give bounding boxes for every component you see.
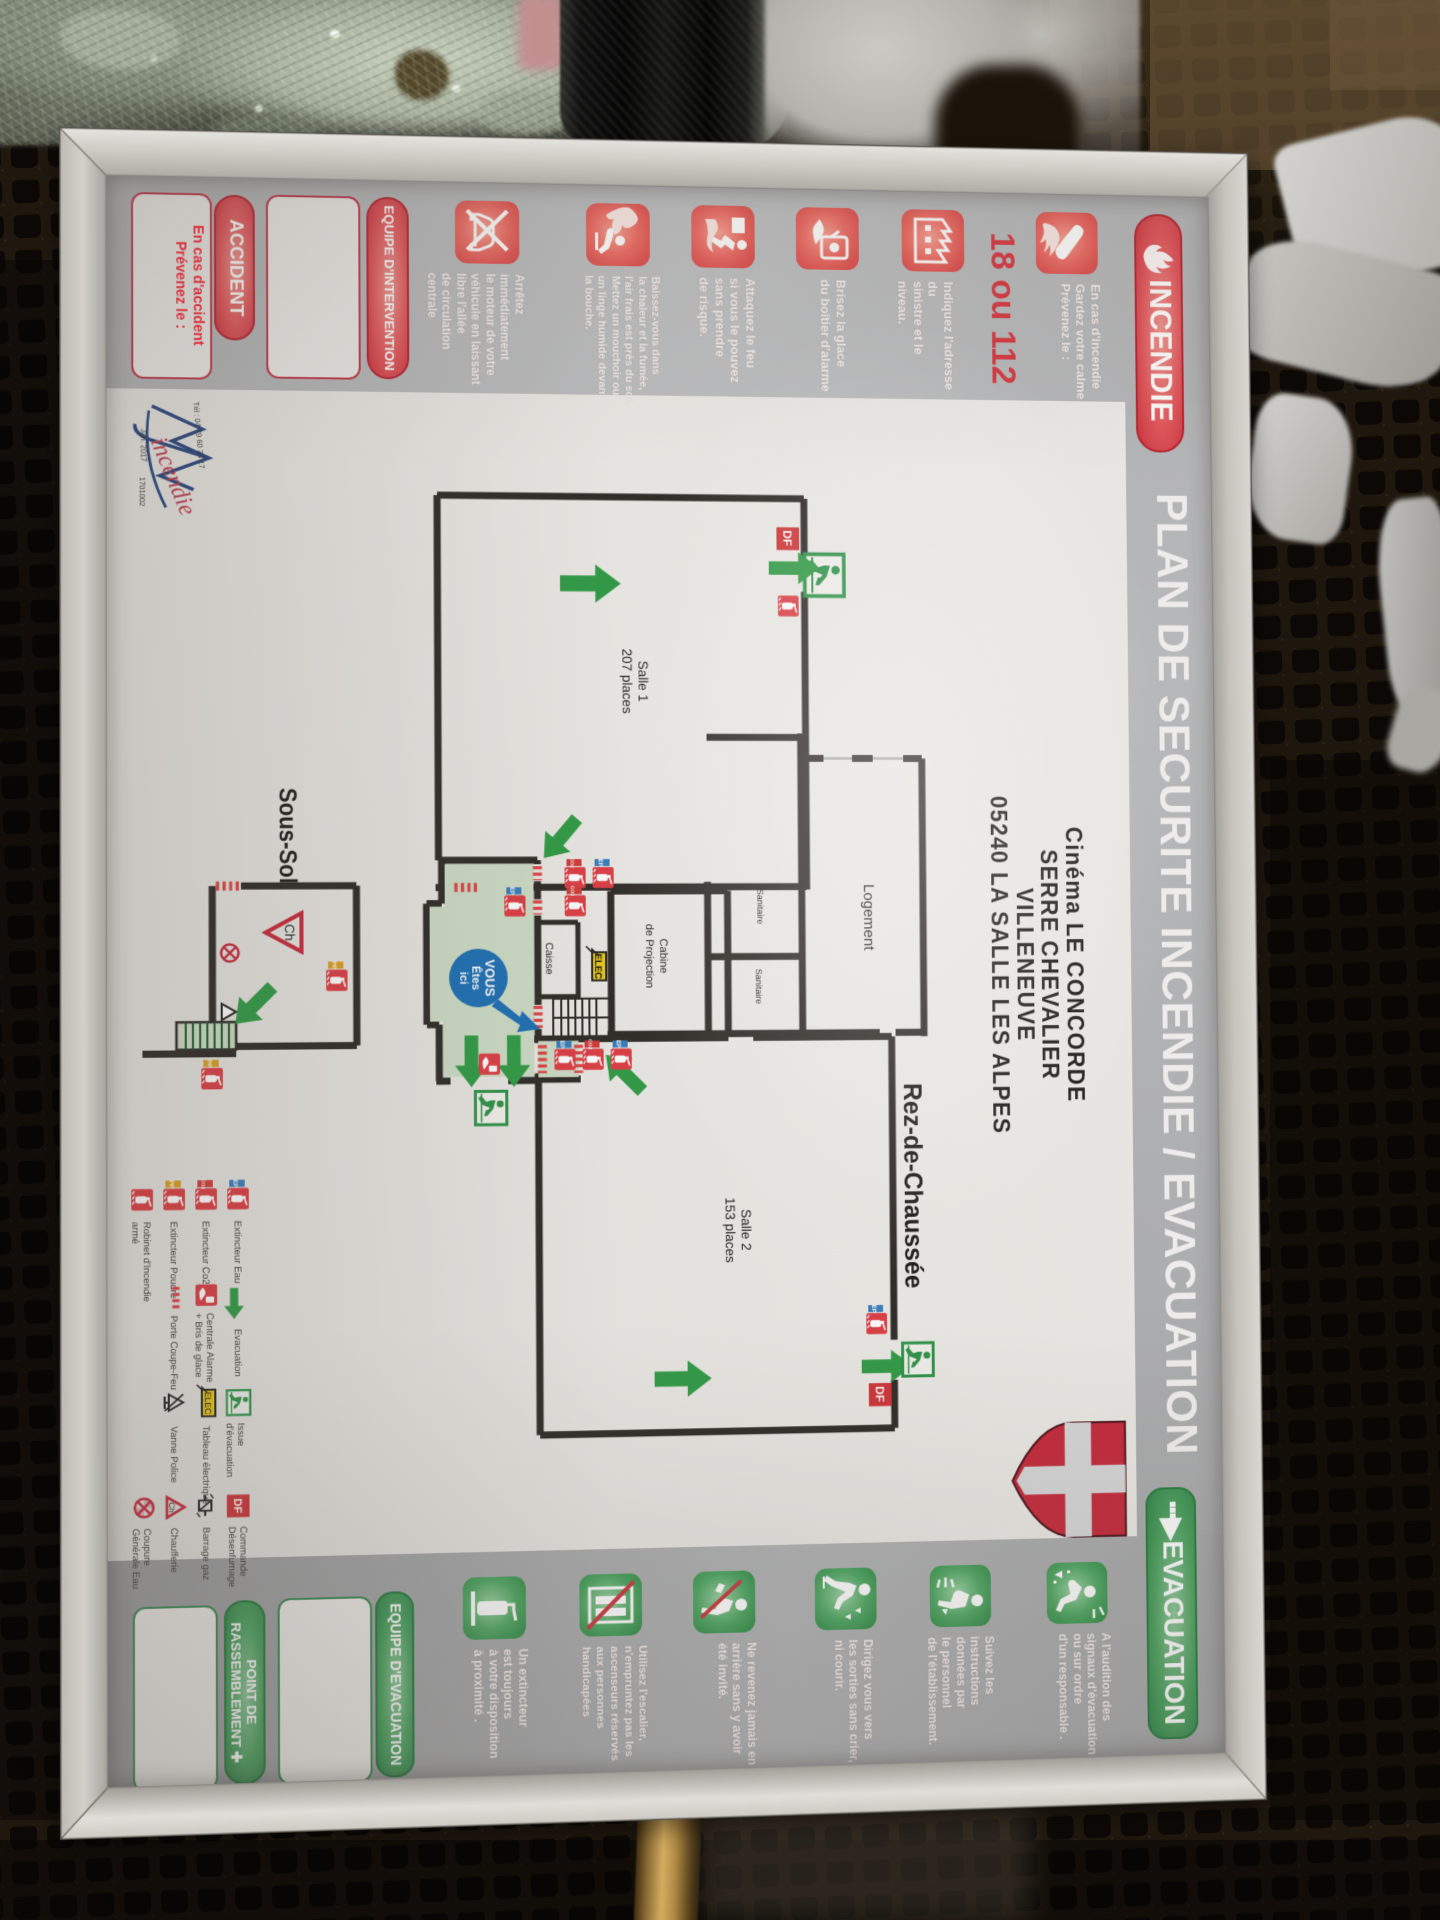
svg-text:207 places: 207 places [619, 649, 634, 714]
svg-text:de Projection: de Projection [643, 924, 655, 988]
svg-text:DF: DF [231, 1498, 243, 1513]
svg-text:Salle 1: Salle 1 [635, 661, 650, 702]
svg-text:Ch: Ch [167, 1502, 176, 1513]
svg-text:armé: armé [129, 1222, 140, 1244]
svg-text:VOUS: VOUS [482, 959, 497, 996]
svg-text:Porte Coupe-Feu: Porte Coupe-Feu [168, 1315, 179, 1390]
svg-text:Tél : 04 79 60 24 17: Tél : 04 79 60 24 17 [191, 401, 206, 469]
svg-text:Barrage gaz: Barrage gaz [200, 1527, 211, 1581]
svg-text:ELEC: ELEC [592, 954, 603, 979]
svg-text:Extincteur Co2: Extincteur Co2 [200, 1221, 211, 1285]
svg-text:Commande: Commande [237, 1526, 248, 1577]
svg-text:Rez-de-Chaussée: Rez-de-Chaussée [898, 1083, 929, 1289]
svg-text:DF: DF [873, 1386, 887, 1403]
svg-text:Jan. 2017: Jan. 2017 [139, 429, 148, 462]
svg-text:Evacuation: Evacuation [232, 1329, 243, 1377]
svg-text:Salle 2: Salle 2 [739, 1209, 754, 1251]
svg-text:153 places: 153 places [723, 1197, 738, 1263]
svg-text:DF: DF [780, 530, 794, 546]
svg-text:Cabine: Cabine [657, 939, 669, 974]
svg-text:Êtes: Êtes [469, 966, 482, 991]
svg-text:Sanitaire: Sanitaire [754, 969, 764, 1004]
svg-text:Logement: Logement [860, 884, 877, 951]
svg-text:ELEC: ELEC [203, 1392, 213, 1415]
svg-text:ici: ici [457, 972, 470, 985]
svg-text:+ Bris de glace: + Bris de glace [192, 1313, 203, 1378]
svg-text:Robinet d'Incendie: Robinet d'Incendie [141, 1222, 152, 1302]
svg-text:Sous-Sol: Sous-Sol [274, 788, 301, 884]
svg-text:Tableau électrique: Tableau électrique [200, 1425, 211, 1504]
svg-text:Issue: Issue [235, 1423, 246, 1446]
svg-text:Vanne Police: Vanne Police [168, 1426, 179, 1483]
svg-text:Sanitaire: Sanitaire [755, 889, 765, 924]
svg-text:Caisse: Caisse [543, 942, 555, 974]
svg-text:Centrale Alarme: Centrale Alarme [204, 1313, 215, 1383]
svg-text:Coupure: Coupure [141, 1528, 152, 1566]
svg-text:Ch: Ch [282, 924, 297, 941]
svg-text:Chaufferie: Chaufferie [168, 1528, 179, 1573]
svg-text:Extincteur Eau: Extincteur Eau [231, 1221, 242, 1284]
svg-text:1701002: 1701002 [138, 477, 147, 507]
svg-text:d'évacuation: d'évacuation [224, 1423, 235, 1477]
svg-text:Désenfumage: Désenfumage [226, 1526, 237, 1587]
svg-text:Générale Eau: Générale Eau [130, 1529, 141, 1590]
